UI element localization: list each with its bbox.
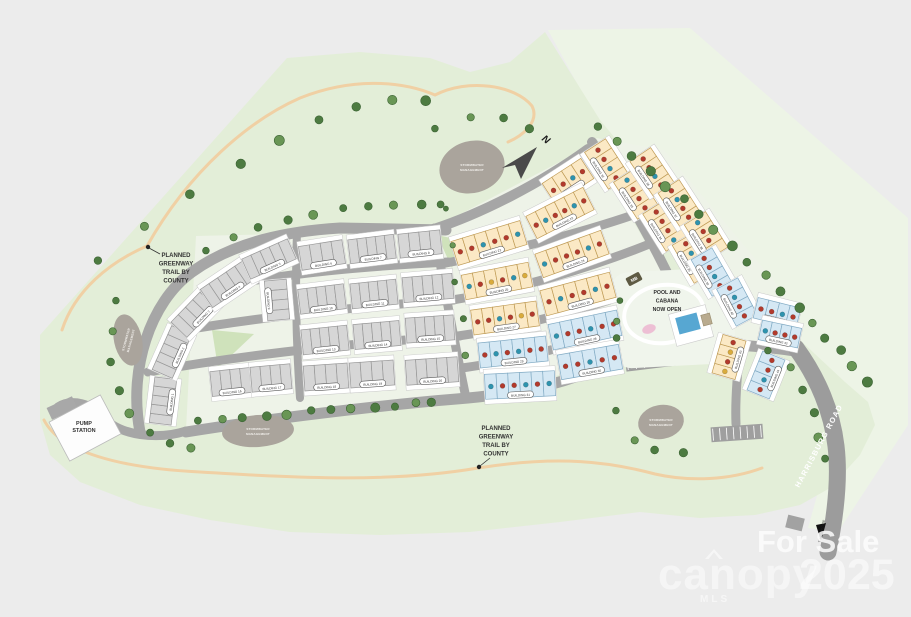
tree-icon <box>185 190 194 199</box>
tree-icon <box>236 159 246 169</box>
tree-icon <box>837 346 846 355</box>
tree-icon <box>613 335 620 342</box>
building: BUILDING 17 <box>249 359 294 398</box>
unit-status-dot <box>527 347 532 352</box>
unit-status-dot <box>493 351 498 356</box>
tree-icon <box>460 316 466 322</box>
tree-icon <box>147 429 154 436</box>
building: BUILDING 8 <box>396 225 443 263</box>
tree-icon <box>679 448 687 456</box>
building: BUILDING 12 <box>401 268 456 307</box>
tree-icon <box>274 135 284 145</box>
tree-icon <box>187 444 195 452</box>
trail-point <box>477 465 481 469</box>
tree-icon <box>203 247 210 254</box>
unit-status-dot <box>516 349 521 354</box>
tree-icon <box>388 95 397 104</box>
building: BUILDING 13 <box>299 320 350 360</box>
tree-icon <box>631 437 638 444</box>
tree-icon <box>115 386 123 394</box>
unit-status-dot <box>500 383 505 388</box>
greenway-note-label: COUNTY <box>483 452 508 458</box>
greenway-note-label: GREENWAY <box>479 435 513 441</box>
tree-icon <box>727 241 737 251</box>
unit-status-dot <box>538 346 543 351</box>
tree-icon <box>219 415 227 423</box>
tree-icon <box>467 114 474 121</box>
tree-icon <box>762 271 771 280</box>
tree-icon <box>125 409 134 418</box>
tree-icon <box>680 195 688 203</box>
tree-icon <box>254 223 262 231</box>
building: BUILDING 19 <box>348 355 396 393</box>
pool-label: NOW OPEN <box>653 307 682 313</box>
tree-icon <box>107 358 115 366</box>
pool-label: CABANA <box>656 299 679 305</box>
tree-icon <box>709 225 718 234</box>
tree-icon <box>617 298 623 304</box>
tree-icon <box>346 404 355 413</box>
tree-icon <box>613 137 621 145</box>
tree-icon <box>822 455 829 462</box>
greenway-note-label: COUNTY <box>163 279 188 285</box>
tree-icon <box>808 319 816 327</box>
greenway-note-label: TRAIL BY <box>162 270 190 276</box>
stormwater-label: STORMWATER <box>246 427 270 431</box>
building: BUILDING 16 <box>208 362 253 401</box>
tree-icon <box>627 152 636 161</box>
tree-icon <box>795 303 805 313</box>
tree-icon <box>462 352 469 359</box>
tree-icon <box>421 96 431 106</box>
tree-icon <box>113 297 120 304</box>
tree-icon <box>309 210 318 219</box>
site-plan: STORMWATERMANAGEMENTSTORMWATERMANAGEMENT… <box>0 0 911 617</box>
unit-status-dot <box>535 381 540 386</box>
road-end-pad <box>785 515 805 532</box>
townhome-unit <box>442 273 454 299</box>
stormwater-label: MANAGEMENT <box>649 423 673 427</box>
tree-icon <box>307 407 315 415</box>
tree-icon <box>613 318 619 324</box>
tree-icon <box>594 123 602 131</box>
building: BUILDING 1 <box>144 375 182 427</box>
unit-status-dot <box>482 352 487 357</box>
tree-icon <box>391 403 398 410</box>
greenway-note-label: TRAIL BY <box>482 443 510 449</box>
building: BUILDING 18 <box>302 358 350 396</box>
tree-icon <box>525 124 533 132</box>
tree-icon <box>352 102 361 111</box>
tree-icon <box>417 200 426 209</box>
tree-icon <box>660 182 670 192</box>
tree-icon <box>364 202 372 210</box>
unit-status-dot <box>512 383 517 388</box>
stormwater-label: MANAGEMENT <box>460 168 484 172</box>
pool-label: POOL AND <box>653 290 680 296</box>
building: BUILDING 7 <box>346 229 398 269</box>
tree-icon <box>862 377 872 387</box>
tree-icon <box>282 410 291 419</box>
tree-icon <box>450 243 456 249</box>
tree-icon <box>847 361 857 371</box>
tree-icon <box>432 125 439 132</box>
tree-icon <box>371 403 380 412</box>
tree-icon <box>810 408 818 416</box>
unit-status-dot <box>488 384 493 389</box>
building: BUILDING 15 <box>404 310 456 348</box>
tree-icon <box>230 234 237 241</box>
tree-icon <box>109 328 116 335</box>
tree-icon <box>315 116 323 124</box>
stormwater-label: MANAGEMENT <box>246 432 270 436</box>
tree-icon <box>765 347 772 354</box>
unit-status-dot <box>523 382 528 387</box>
site-plan-svg: STORMWATERMANAGEMENTSTORMWATERMANAGEMENT… <box>0 0 911 617</box>
trail-point <box>146 245 150 249</box>
stormwater-label: STORMWATER <box>649 418 673 422</box>
tree-icon <box>452 279 458 285</box>
building: BUILDING 31 <box>483 366 557 405</box>
tree-icon <box>743 258 751 266</box>
tree-icon <box>694 210 703 219</box>
building: BUILDING 20 <box>404 352 460 391</box>
tree-icon <box>443 206 448 211</box>
tree-icon <box>500 114 508 122</box>
tree-icon <box>327 405 335 413</box>
tree-icon <box>340 205 347 212</box>
tree-icon <box>166 439 174 447</box>
building: BUILDING 10 <box>296 279 348 320</box>
tree-icon <box>651 446 659 454</box>
tree-icon <box>776 287 785 296</box>
tree-icon <box>646 166 656 176</box>
building: BUILDING 11 <box>348 274 399 314</box>
tree-icon <box>437 201 444 208</box>
building: BUILDING 6 <box>297 235 348 276</box>
greenway-note-label: PLANNED <box>481 426 511 432</box>
unit-status-dot <box>546 381 551 386</box>
tree-icon <box>94 257 102 265</box>
tree-icon <box>613 407 620 414</box>
tree-icon <box>140 222 148 230</box>
tree-icon <box>262 412 271 421</box>
tree-icon <box>820 334 828 342</box>
building: BUILDING 9 <box>259 278 295 323</box>
townhome-unit <box>447 357 459 383</box>
pump-station-label: STATION <box>72 428 95 434</box>
tree-icon <box>389 201 397 209</box>
greenway-note-label: GREENWAY <box>159 262 193 268</box>
pump-station-label: PUMP <box>76 421 92 427</box>
tree-icon <box>799 386 807 394</box>
tree-icon <box>427 398 436 407</box>
unit-status-dot <box>505 350 510 355</box>
stormwater-label: STORMWATER <box>460 163 484 167</box>
tree-icon <box>194 417 201 424</box>
building: BUILDING 14 <box>352 315 403 354</box>
tree-icon <box>238 413 246 421</box>
townhome-unit <box>390 321 401 347</box>
greenway-note-label: PLANNED <box>161 253 191 259</box>
tree-icon <box>787 364 794 371</box>
tree-icon <box>284 216 292 224</box>
tree-icon <box>412 399 420 407</box>
townhome-unit <box>443 315 454 341</box>
